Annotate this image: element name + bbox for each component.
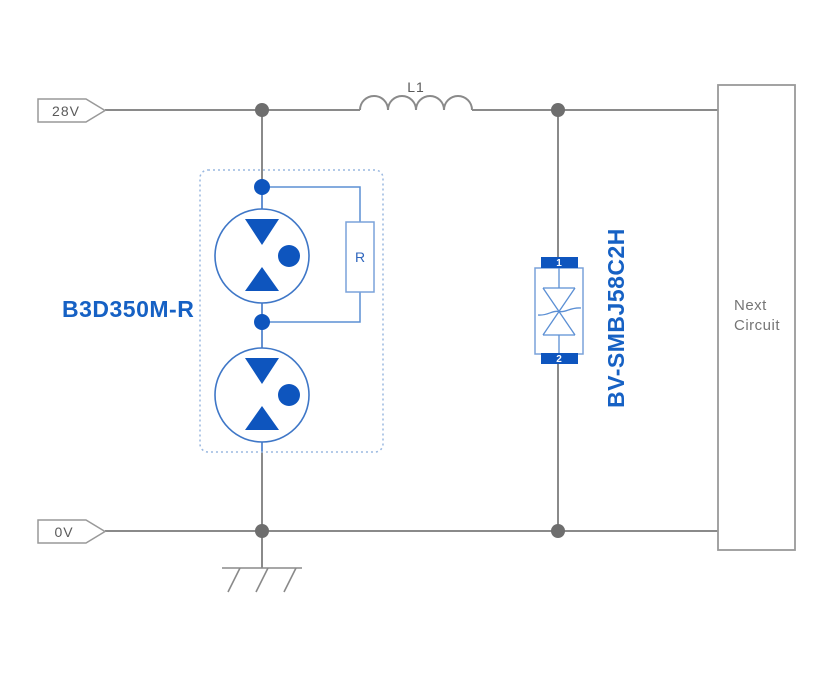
- circuit-diagram: L1 28V 0V R: [0, 0, 832, 675]
- next-circuit-block: Next Circuit: [718, 85, 795, 550]
- tvs-pin1-label: 1: [556, 258, 562, 269]
- gdt-node-middle: [254, 314, 270, 330]
- inductor-label: L1: [407, 79, 425, 95]
- junction-dots: [255, 103, 565, 538]
- net-tag-0v: 0V: [38, 520, 105, 543]
- tvs-label: BV-SMBJ58C2H: [603, 228, 629, 408]
- gdt-upper: [215, 209, 309, 303]
- gdt-lower: [215, 348, 309, 442]
- circuit-diagram-canvas: L1 28V 0V R: [0, 0, 832, 675]
- tvs-pin2-label: 2: [556, 354, 562, 365]
- ground-symbol: [222, 568, 302, 592]
- gdt-lower-dot: [278, 384, 300, 406]
- gdt-module-label: B3D350M-R: [62, 296, 194, 322]
- gdt-upper-dot: [278, 245, 300, 267]
- resistor-label: R: [355, 249, 365, 265]
- net-tag-28v: 28V: [38, 99, 105, 122]
- next-circuit-label-line1: Next: [734, 297, 767, 314]
- tvs-component: 1 2: [535, 257, 583, 365]
- gdt-node-top: [254, 179, 270, 195]
- net-tag-0v-label: 0V: [54, 524, 73, 540]
- net-tag-28v-label: 28V: [52, 103, 80, 119]
- inductor-symbol: [360, 96, 472, 110]
- next-circuit-label-line2: Circuit: [734, 317, 780, 334]
